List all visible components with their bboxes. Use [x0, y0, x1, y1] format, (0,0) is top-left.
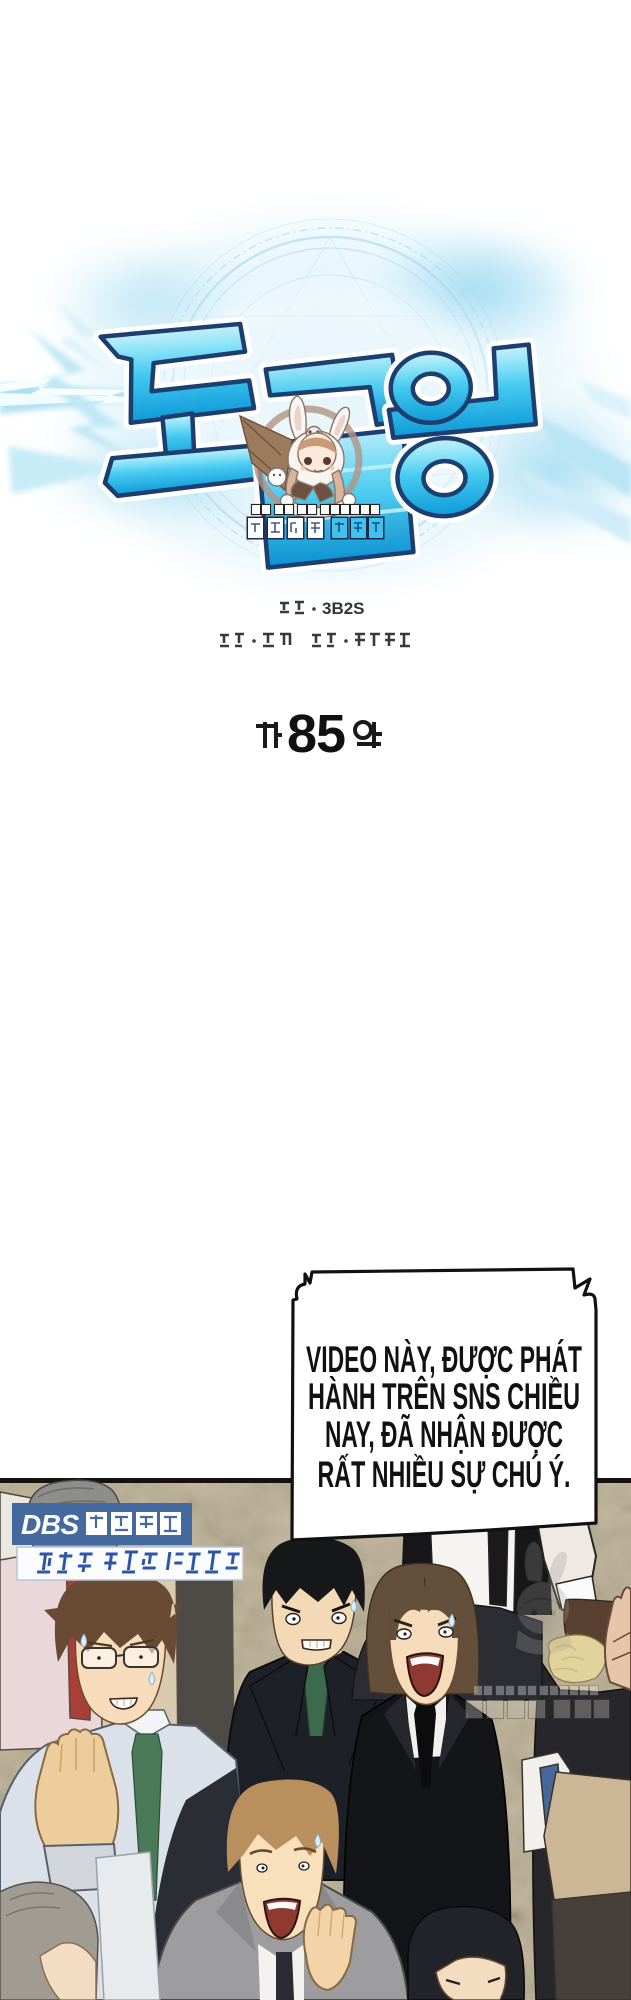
svg-text:DBS: DBS — [21, 1509, 79, 1540]
svg-text:3B2S: 3B2S — [322, 599, 365, 618]
svg-text:HÀNH TRÊN SNS CHIỀU: HÀNH TRÊN SNS CHIỀU — [308, 1375, 580, 1417]
svg-text:VIDEO NÀY, ĐƯỢC PHÁT: VIDEO NÀY, ĐƯỢC PHÁT — [306, 1339, 582, 1380]
svg-text:85: 85 — [287, 704, 345, 764]
svg-text:NAY, ĐÃ NHẬN ĐƯỢC: NAY, ĐÃ NHẬN ĐƯỢC — [325, 1413, 563, 1455]
svg-text:RẤT NHIỀU SỰ CHÚ Ý.: RẤT NHIỀU SỰ CHÚ Ý. — [318, 1453, 571, 1495]
